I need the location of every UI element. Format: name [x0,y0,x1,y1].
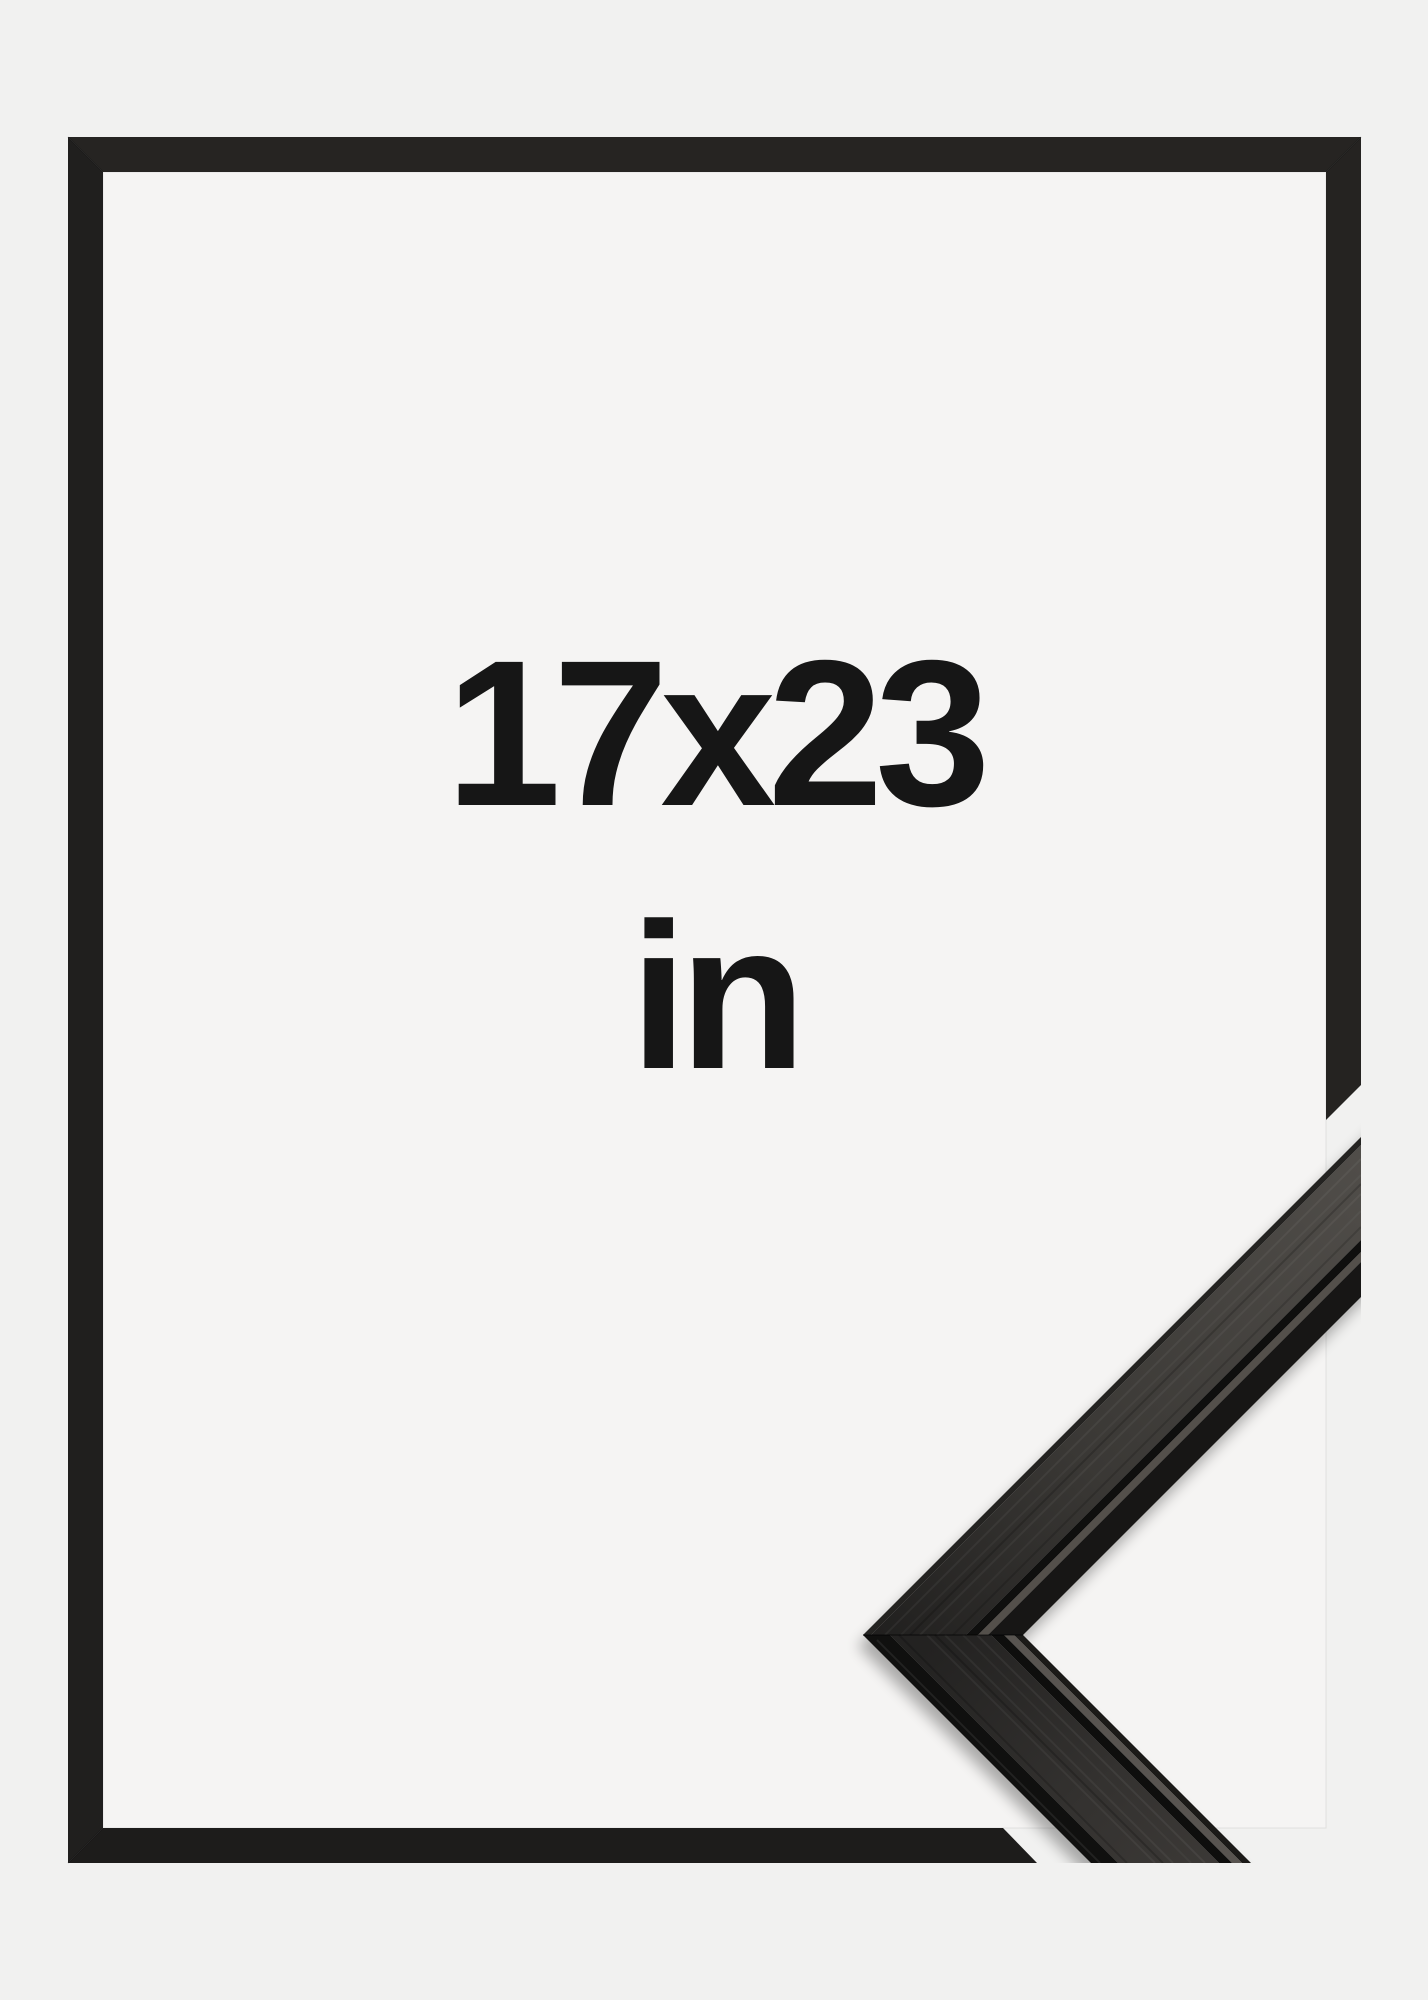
size-label: 17x23 [0,630,1428,838]
frame-outline-bottom-bar [68,1828,1037,1863]
frame-product-photo: 17x23 in [0,0,1428,2000]
unit-label: in [0,893,1428,1101]
frame-outline-top-bar [68,137,1361,172]
